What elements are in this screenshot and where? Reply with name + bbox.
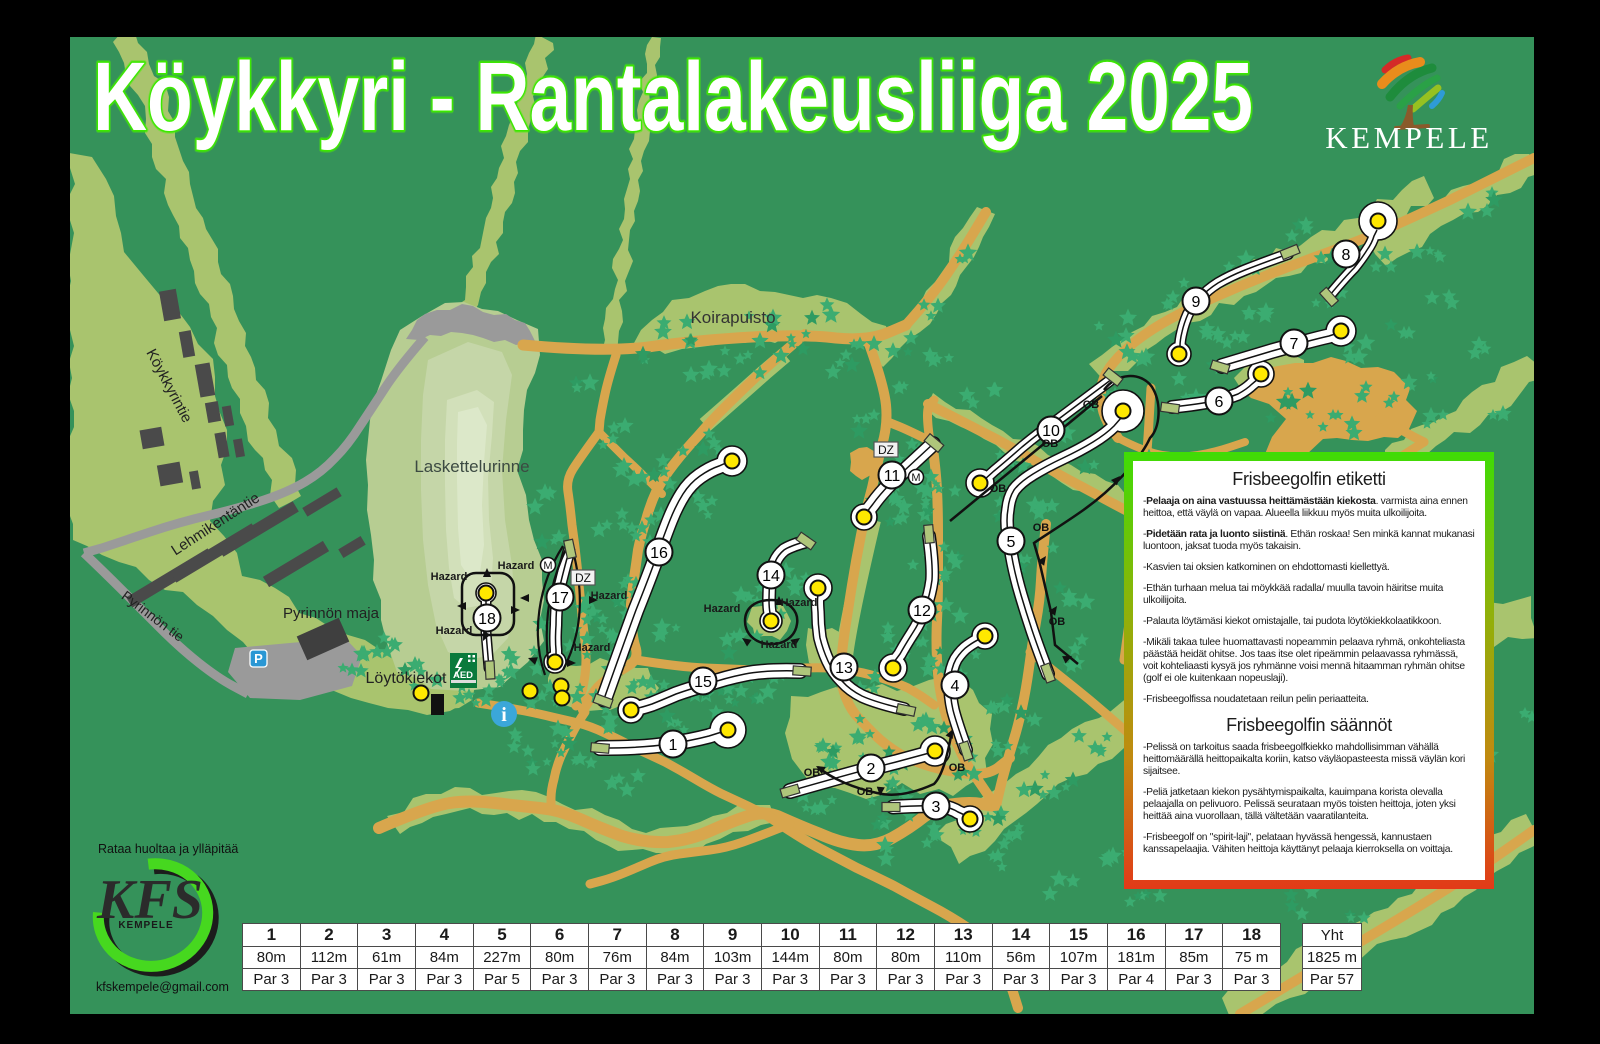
svg-text:OB: OB	[804, 767, 821, 779]
svg-text:DZ: DZ	[575, 571, 591, 585]
svg-text:DZ: DZ	[878, 443, 894, 457]
svg-text:OB: OB	[857, 786, 874, 798]
svg-text:AED: AED	[453, 670, 473, 681]
svg-text:14: 14	[762, 568, 780, 585]
svg-text:3: 3	[932, 799, 941, 816]
svg-text:M: M	[543, 560, 552, 572]
svg-text:16: 16	[650, 545, 668, 562]
svg-text:Hazard: Hazard	[704, 603, 741, 615]
svg-text:13: 13	[835, 660, 853, 677]
svg-text:OB: OB	[1042, 438, 1059, 450]
svg-text:Hazard: Hazard	[761, 639, 798, 651]
svg-text:OB: OB	[1083, 399, 1100, 411]
svg-text:Pyrinnön maja: Pyrinnön maja	[283, 605, 380, 622]
svg-text:Laskettelurinne: Laskettelurinne	[414, 457, 529, 476]
svg-text:P: P	[254, 651, 263, 666]
svg-text:M: M	[911, 472, 920, 484]
svg-text:kfskempele@gmail.com: kfskempele@gmail.com	[96, 980, 229, 994]
svg-text:Hazard: Hazard	[591, 590, 628, 602]
svg-text:KEMPELE: KEMPELE	[1325, 120, 1492, 155]
svg-text:OB: OB	[1049, 616, 1066, 628]
svg-text:2: 2	[867, 761, 876, 778]
svg-text:7: 7	[1290, 336, 1299, 353]
svg-text:Hazard: Hazard	[431, 571, 468, 583]
svg-text:12: 12	[913, 603, 931, 620]
svg-text:Rataa huoltaa ja ylläpitää: Rataa huoltaa ja ylläpitää	[98, 842, 238, 856]
svg-text:OB: OB	[949, 762, 966, 774]
svg-text:Löytökiekot: Löytökiekot	[366, 670, 447, 687]
svg-text:17: 17	[551, 590, 569, 607]
svg-text:OB: OB	[990, 483, 1007, 495]
svg-text:18: 18	[478, 611, 496, 628]
svg-text:Hazard: Hazard	[781, 597, 818, 609]
svg-text:Hazard: Hazard	[574, 642, 611, 654]
svg-text:Koirapuisto: Koirapuisto	[690, 308, 775, 327]
svg-text:4: 4	[951, 678, 960, 695]
svg-text:15: 15	[694, 674, 712, 691]
svg-text:11: 11	[884, 468, 901, 485]
svg-text:OB: OB	[1033, 522, 1050, 534]
svg-text:Hazard: Hazard	[498, 560, 535, 572]
svg-text:8: 8	[1342, 247, 1351, 264]
svg-text:9: 9	[1192, 294, 1201, 311]
svg-text:i: i	[501, 704, 507, 726]
svg-text:5: 5	[1007, 534, 1016, 551]
svg-text:Köykkyri - Rantalakeusliiga 2: Köykkyri - Rantalakeusliiga 2025	[93, 42, 1253, 151]
svg-text:1: 1	[669, 737, 678, 754]
svg-text:KEMPELE: KEMPELE	[118, 920, 173, 931]
svg-text:6: 6	[1215, 394, 1224, 411]
svg-text:Hazard: Hazard	[436, 625, 473, 637]
